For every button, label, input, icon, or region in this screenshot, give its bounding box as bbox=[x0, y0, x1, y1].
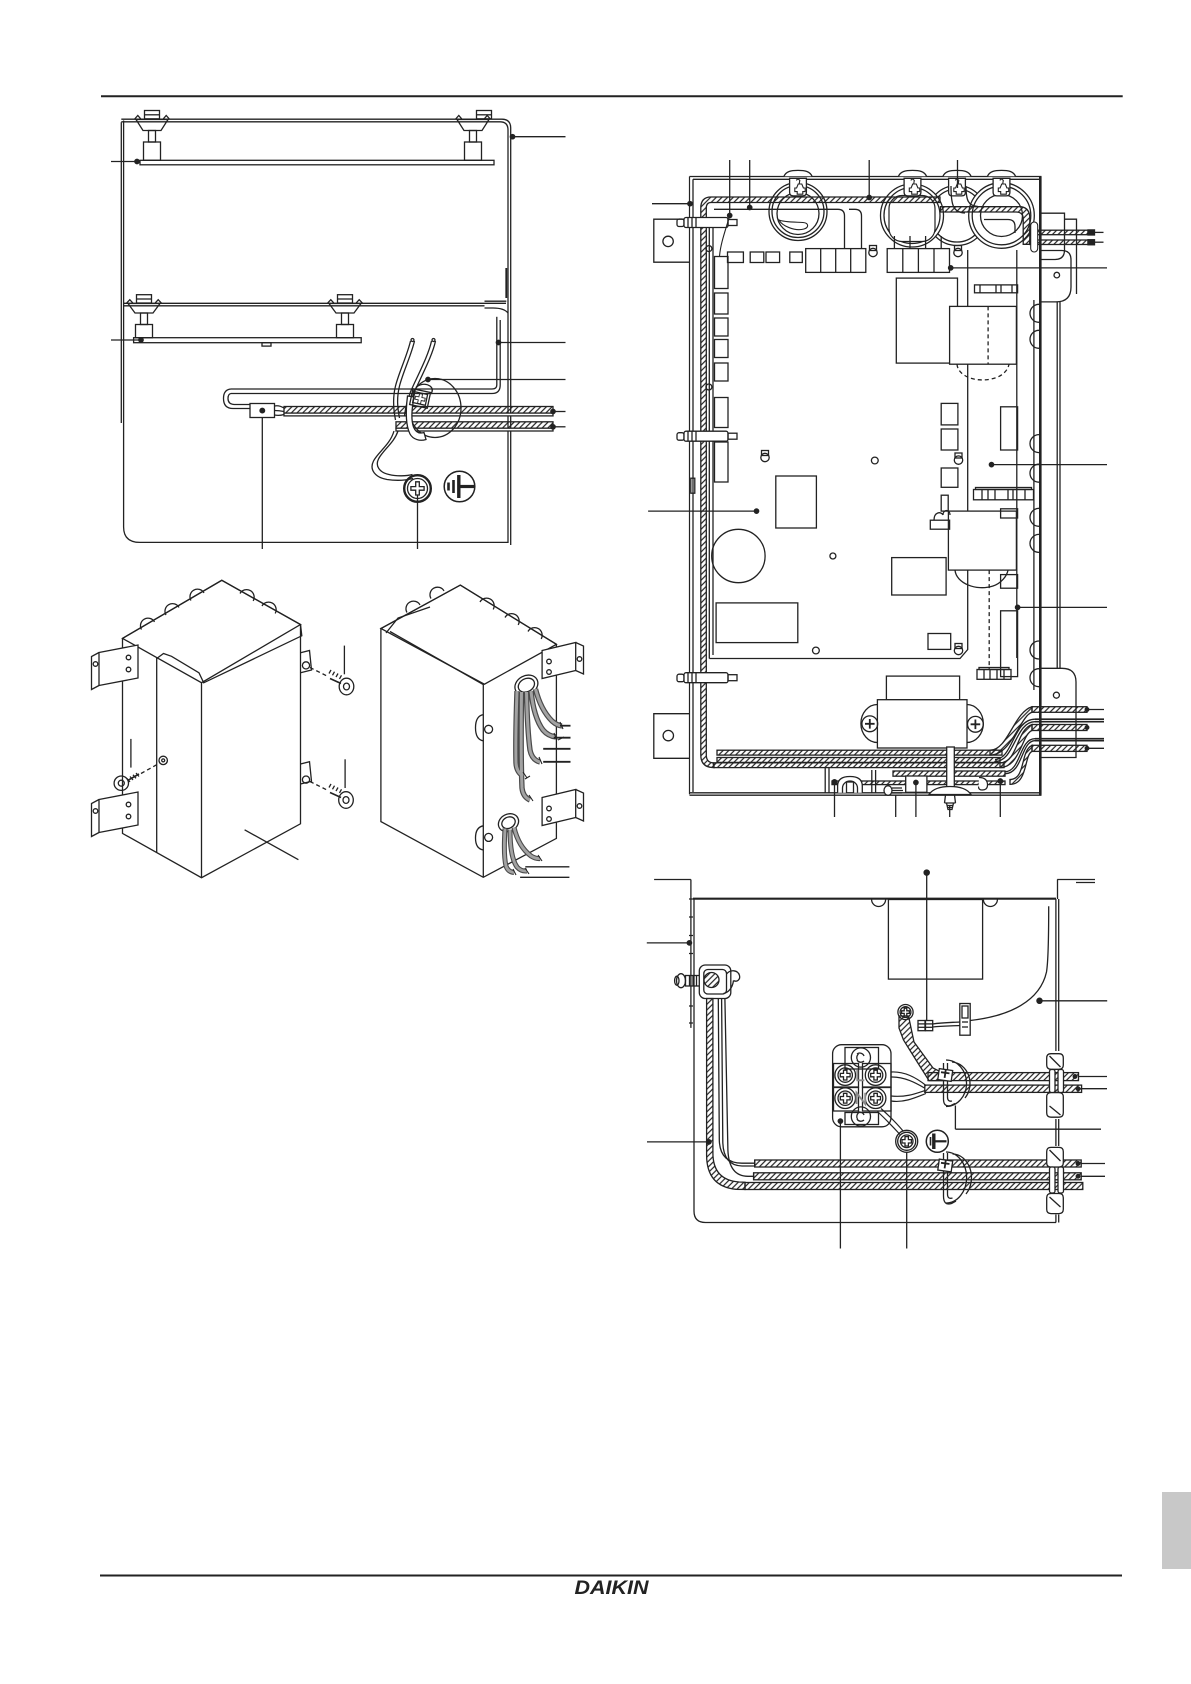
svg-text:DAIKIN: DAIKIN bbox=[575, 1577, 650, 1599]
